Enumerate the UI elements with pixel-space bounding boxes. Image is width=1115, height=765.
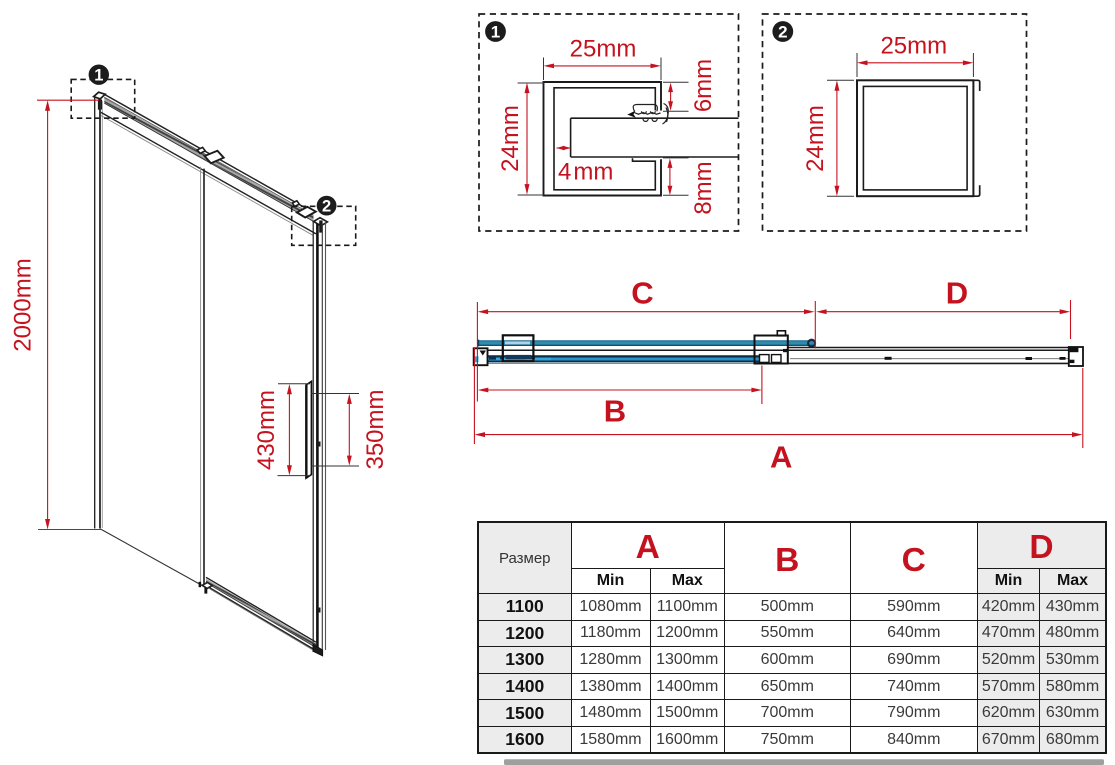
svg-text:24mm: 24mm — [802, 105, 829, 172]
svg-text:1: 1 — [94, 67, 103, 85]
svg-text:2000mm: 2000mm — [10, 258, 37, 351]
svg-text:25mm: 25mm — [570, 36, 637, 63]
svg-text:8mm: 8mm — [690, 161, 717, 214]
svg-text:1: 1 — [491, 22, 500, 41]
svg-text:6mm: 6mm — [690, 59, 717, 112]
svg-text:2: 2 — [778, 22, 787, 41]
svg-text:430mm: 430mm — [253, 390, 280, 470]
svg-text:350mm: 350mm — [362, 389, 389, 469]
svg-text:A: A — [770, 440, 792, 475]
svg-text:B: B — [604, 394, 626, 429]
svg-text:D: D — [946, 276, 968, 311]
svg-text:24mm: 24mm — [497, 105, 524, 172]
svg-text:C: C — [631, 276, 653, 311]
svg-text:25mm: 25mm — [880, 33, 947, 60]
svg-text:2: 2 — [322, 197, 331, 215]
svg-text:4mm: 4mm — [558, 159, 613, 186]
